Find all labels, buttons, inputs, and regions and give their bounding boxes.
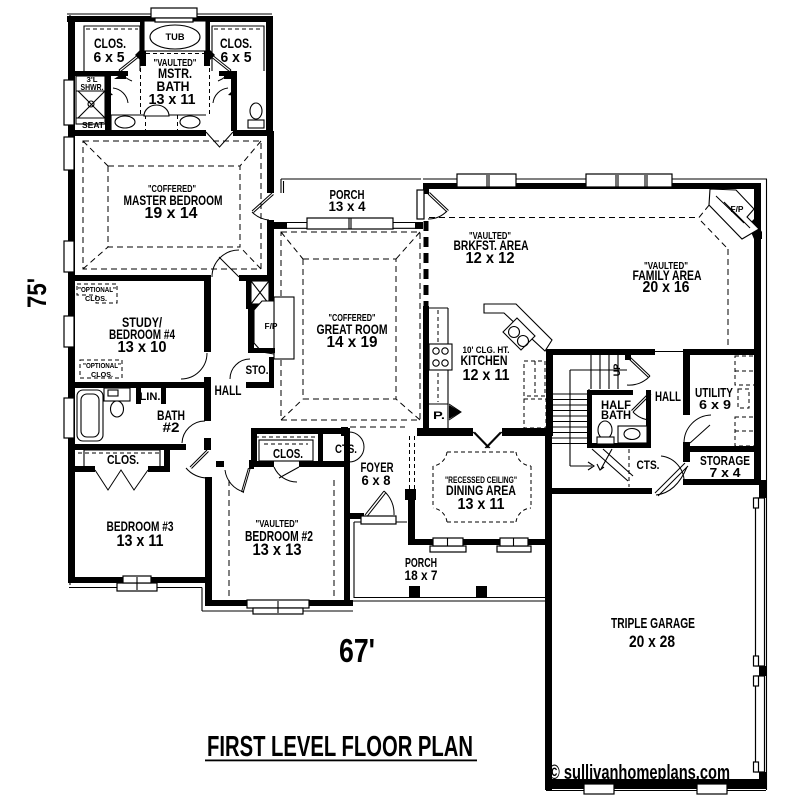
svg-text:F/P: F/P [731, 205, 745, 214]
svg-text:20 x 16: 20 x 16 [643, 279, 690, 296]
svg-text:CLOS.: CLOS. [107, 452, 139, 467]
svg-text:6 x 5: 6 x 5 [94, 49, 125, 66]
svg-text:12 x 11: 12 x 11 [463, 367, 510, 384]
svg-text:13 x 11: 13 x 11 [458, 496, 505, 513]
svg-text:HALL: HALL [655, 389, 681, 404]
svg-text:19 x 14: 19 x 14 [145, 205, 198, 222]
svg-text:#2: #2 [163, 420, 180, 435]
svg-text:CLOS.: CLOS. [91, 370, 113, 379]
svg-text:KITCHEN: KITCHEN [461, 352, 508, 368]
svg-text:18 x 7: 18 x 7 [405, 567, 438, 583]
svg-text:F/P: F/P [265, 322, 279, 331]
svg-text:SEAT: SEAT [82, 120, 105, 130]
svg-text:13 x 11: 13 x 11 [117, 532, 164, 550]
svg-text:"OPTIONAL": "OPTIONAL" [78, 287, 116, 294]
svg-text:FIRST LEVEL FLOOR PLAN: FIRST LEVEL FLOOR PLAN [207, 731, 473, 763]
svg-text:STO.: STO. [246, 363, 269, 377]
svg-text:13 x 10: 13 x 10 [118, 339, 167, 356]
svg-text:12 x 12: 12 x 12 [466, 250, 515, 267]
svg-text:14 x 19: 14 x 19 [327, 334, 378, 351]
svg-text:75': 75' [22, 278, 52, 308]
svg-text:© sullivanhomeplans.com: © sullivanhomeplans.com [549, 762, 730, 784]
svg-text:LIN.: LIN. [140, 391, 161, 403]
svg-text:20 x 28: 20 x 28 [629, 632, 675, 651]
svg-text:CLOS.: CLOS. [85, 294, 107, 303]
svg-text:13 x 4: 13 x 4 [329, 198, 366, 214]
svg-text:6 x 5: 6 x 5 [221, 49, 252, 66]
svg-text:7 x 4: 7 x 4 [710, 466, 741, 480]
svg-text:CTS.: CTS. [637, 458, 660, 472]
svg-text:P.: P. [433, 410, 445, 422]
svg-text:CLOS.: CLOS. [273, 446, 303, 461]
svg-text:13 x 13: 13 x 13 [253, 541, 302, 559]
svg-text:SHWR.: SHWR. [81, 82, 104, 92]
svg-text:6 x 9: 6 x 9 [699, 398, 731, 412]
svg-text:67': 67' [339, 632, 375, 669]
svg-text:6 x 8: 6 x 8 [362, 473, 391, 488]
svg-text:TRIPLE GARAGE: TRIPLE GARAGE [611, 615, 695, 632]
svg-text:UP: UP [612, 364, 622, 377]
svg-text:TUB: TUB [166, 32, 185, 43]
svg-text:"OPTIONAL": "OPTIONAL" [83, 363, 121, 370]
svg-text:CTS.: CTS. [335, 442, 357, 456]
svg-text:HALL: HALL [215, 383, 242, 398]
svg-text:BATH: BATH [601, 408, 631, 422]
